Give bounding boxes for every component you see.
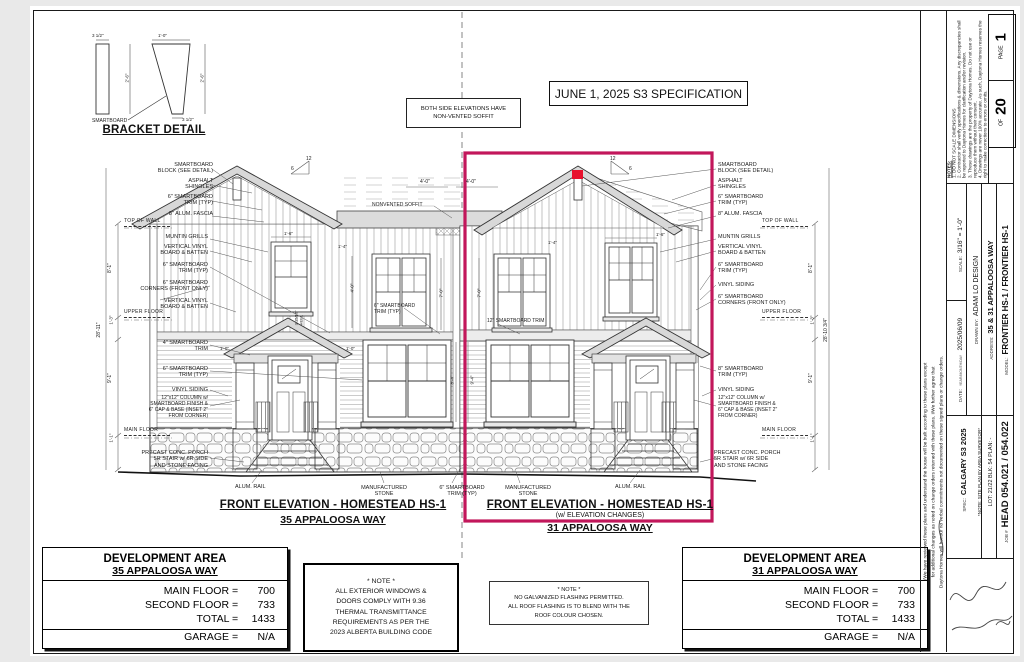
- annotation: ALUM. RAIL: [235, 484, 285, 490]
- field-spec: SPEC:CALGARY S3 2025: [953, 428, 971, 511]
- table-row-garage: GARAGE = N/A: [683, 629, 927, 644]
- annotation: 12" SMARTBOARD TRIM: [487, 319, 567, 325]
- development-area-left: DEVELOPMENT AREA 35 APPALOOSA WAY MAIN F…: [42, 547, 288, 649]
- annotation: 3 1/2": [92, 33, 104, 38]
- annotation: 1'-3": [809, 316, 814, 325]
- soffit-note-box: BOTH SIDE ELEVATIONS HAVE NON-VENTED SOF…: [406, 98, 521, 128]
- annotation: MUNTIN GRILLS: [128, 234, 208, 240]
- table-row: MAIN FLOOR = 700: [683, 584, 927, 598]
- right-house: [460, 161, 710, 472]
- annotation: 12: [610, 157, 616, 163]
- drawing-sheet: SMARTBOARD BLOCK (SEE DETAIL)ASPHALT SHI…: [0, 0, 1024, 662]
- annotation: SMARTBOARD BLOCK (SEE DETAIL): [718, 162, 803, 175]
- table-row-garage: GARAGE = N/A: [43, 629, 287, 644]
- annotation: 1'-1": [809, 434, 814, 443]
- annotation: MANUFACTURED STONE: [496, 485, 560, 498]
- dev-right-address: 31 APPALOOSA WAY: [683, 565, 927, 581]
- annotation: 4'-0": [420, 180, 430, 186]
- table-row: SECOND FLOOR = 733: [43, 598, 287, 612]
- annotation: 3 1/2": [182, 117, 194, 122]
- annotation: 1'-0": [220, 346, 229, 351]
- disclaimer-line: I/We have reviewed these plans and under…: [924, 363, 929, 582]
- annotation: 1'-6": [656, 232, 665, 237]
- annotation: UPPER FLOOR: [124, 310, 170, 318]
- annotation: 6" SMARTBOARD TRIM (TYP): [138, 194, 213, 207]
- field-scale: SCALE:3/16" = 1'-0": [949, 218, 967, 272]
- flashing-note-box: * NOTE *NO GALVANIZED FLASHING PERMITTED…: [489, 581, 649, 625]
- annotation: 7'-0": [438, 289, 443, 298]
- grade-line: [118, 472, 756, 481]
- disclaimer-line: for additional changes as noted on chang…: [932, 367, 937, 578]
- annotation: SMARTBOARD BLOCK (SEE DETAIL): [128, 162, 213, 175]
- left-elevation-title-text: FRONT ELEVATION - HOMESTEAD HS-1: [208, 499, 458, 511]
- annotation: 6" SMARTBOARD TRIM (TYP): [138, 366, 208, 379]
- left-elevation-title: FRONT ELEVATION - HOMESTEAD HS-1 35 APPA…: [208, 499, 458, 526]
- left-house: [132, 161, 506, 472]
- spec-date-banner: JUNE 1, 2025 S3 SPECIFICATION: [549, 81, 748, 106]
- table-row: SECOND FLOOR = 733: [683, 598, 927, 612]
- annotation: 9'-1": [108, 373, 114, 383]
- left-elevation-address: 35 APPALOOSA WAY: [208, 514, 458, 526]
- field-job-number: JOB #HEAD 054.021 / 054.022: [995, 421, 1013, 543]
- annotation: 12: [306, 157, 312, 163]
- titleblock-notes: NOTES: 1. DO NOT SCALE DIMENSIONS2. Cont…: [946, 16, 987, 178]
- annotation: 1'-0": [158, 33, 167, 38]
- table-row: TOTAL = 1433: [43, 612, 287, 626]
- soffit-note-line2: NON-VENTED SOFFIT: [433, 113, 494, 121]
- annotation: MUNTIN GRILLS: [718, 234, 798, 240]
- bracket-detail-title: BRACKET DETAIL: [96, 124, 212, 136]
- annotation: 6: [629, 167, 632, 173]
- annotation: 1'-6": [284, 231, 293, 236]
- annotation: 6" SMARTBOARD TRIM (TYP): [138, 262, 208, 275]
- field-date: DATE:YEAR/MONTH/DAY 2025/06/09: [949, 318, 967, 402]
- annotation: 6" SMARTBOARD TRIM (TYP): [430, 485, 494, 498]
- annotation: 1'-1": [108, 434, 113, 443]
- annotation: ASPHALT SHINGLES: [148, 178, 213, 191]
- dev-left-address: 35 APPALOOSA WAY: [43, 565, 287, 581]
- soffit-note-line1: BOTH SIDE ELEVATIONS HAVE: [421, 105, 506, 113]
- annotation: 4" SMARTBOARD TRIM: [138, 340, 208, 353]
- annotation: 6" SMARTBOARD TRIM (TYP): [374, 304, 434, 316]
- annotation: 2'-6": [199, 74, 204, 83]
- annotation: 1'-4": [548, 240, 557, 245]
- disclaimer-line: Daytona Homes will honour no verbal comm…: [940, 356, 945, 588]
- annotation: 8" SMARTBOARD TRIM (TYP): [718, 366, 788, 379]
- annotation: 6" SMARTBOARD CORNERS (FRONT ONLY): [118, 280, 208, 293]
- annotation: ASPHALT SHINGLES: [718, 178, 783, 191]
- annotation: 1'-3": [108, 316, 113, 325]
- annotation: 9'-4": [469, 376, 474, 385]
- table-row: MAIN FLOOR = 700: [43, 584, 287, 598]
- annotation: 6" SMARTBOARD TRIM (TYP): [718, 262, 788, 275]
- bracket-detail-shapes: [96, 40, 205, 120]
- annotation: 8'-1": [108, 263, 114, 273]
- annotation: MANUFACTURED STONE: [352, 485, 416, 498]
- annotation: 6" SMARTBOARD TRIM (TYP): [718, 194, 793, 207]
- annotation: 8'-4": [449, 376, 454, 385]
- thermal-note-box: * NOTE *ALL EXTERIOR WINDOWS &DOORS COMP…: [303, 563, 459, 652]
- dev-left-title: DEVELOPMENT AREA: [43, 548, 287, 565]
- annotation: 28'-10 3/4": [824, 318, 830, 342]
- annotation: TOP OF WALL: [762, 219, 808, 227]
- annotation: VERTICAL VINYL BOARD & BATTEN: [718, 244, 798, 257]
- annotation: PRECAST CONC. PORCH 5R STAIR w/ 6R SIDE …: [112, 450, 208, 469]
- annotation: VINYL SIDING: [718, 282, 788, 288]
- annotation: 1'-0": [346, 346, 355, 351]
- annotation: 8'-1": [809, 263, 815, 273]
- right-elevation-address: 31 APPALOOSA WAY: [475, 522, 725, 534]
- annotation: 4'-0": [349, 284, 354, 293]
- annotation: 8" ALUM. FASCIA: [128, 211, 213, 217]
- red-spec-marker: [572, 170, 583, 179]
- annotation: 3 15/16" HEEL: [294, 311, 303, 326]
- annotation: 9'-1": [809, 373, 815, 383]
- annotation: 12"x12" COLUMN w/ SMARTBOARD FINISH & 6"…: [112, 396, 208, 420]
- annotation: 1'-4": [338, 244, 347, 249]
- annotation: PRECAST CONC. PORCH 5R STAIR w/ 6R SIDE …: [714, 450, 810, 469]
- right-elevation-title: FRONT ELEVATION - HOMESTEAD HS-1 (w/ ELE…: [475, 499, 725, 534]
- annotation: VINYL SIDING: [138, 387, 208, 393]
- annotation: 2'-6": [124, 74, 129, 83]
- annotation: 6: [291, 167, 294, 173]
- annotation: VERTICAL VINYL BOARD & BATTEN: [128, 244, 208, 257]
- field-drawn-by: DRAWN BY:ADAM LO DESIGN: [965, 256, 983, 344]
- annotation: MAIN FLOOR: [762, 428, 808, 436]
- annotation: TOP OF WALL: [124, 219, 170, 227]
- dev-right-title: DEVELOPMENT AREA: [683, 548, 927, 565]
- annotation: VINYL SIDING: [718, 387, 788, 393]
- annotation: 28'-11": [97, 322, 103, 337]
- page-total: OF20: [993, 98, 1010, 126]
- annotation: ALUM. RAIL: [615, 484, 665, 490]
- table-row: TOTAL = 1433: [683, 612, 927, 626]
- annotation: MAIN FLOOR: [124, 428, 170, 436]
- annotation: 8" ALUM. FASCIA: [718, 211, 803, 217]
- page-number: PAGE1: [993, 33, 1010, 59]
- annotation: NONVENTED SOFFIT: [372, 203, 434, 209]
- right-elevation-title-text: FRONT ELEVATION - HOMESTEAD HS-1: [475, 499, 725, 511]
- annotation: 6" SMARTBOARD CORNERS (FRONT ONLY): [718, 294, 810, 307]
- annotation: 4'-0": [466, 180, 476, 186]
- development-area-right: DEVELOPMENT AREA 31 APPALOOSA WAY MAIN F…: [682, 547, 928, 649]
- annotation: 12"x12" COLUMN w/ SMARTBOARD FINISH & 6"…: [718, 396, 814, 420]
- right-elevation-subtitle: (w/ ELEVATION CHANGES): [475, 512, 725, 519]
- annotation: 7'-0": [476, 289, 481, 298]
- annotation: UPPER FLOOR: [762, 310, 808, 318]
